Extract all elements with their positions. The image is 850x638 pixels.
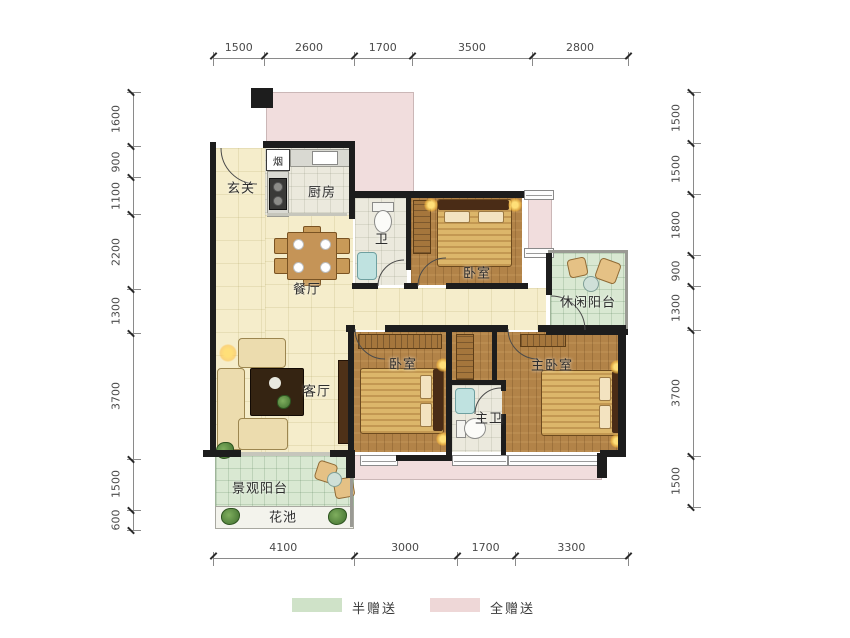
dim-label: 2600 (295, 41, 323, 54)
wall (203, 450, 241, 457)
dimension-rail-left: 160090011002200130037001500600 (133, 92, 134, 530)
dim-label: 1700 (472, 541, 500, 554)
flue-box: 烟 (266, 149, 290, 171)
wall (348, 325, 354, 455)
bath-basin-icon (357, 252, 377, 280)
dimension-rail-top: 15002600170035002800 (213, 58, 628, 59)
dim-label: 4100 (269, 541, 297, 554)
flower-bed-label: 花池 (269, 507, 297, 526)
leisure-balcony-label: 休闲阳台 (560, 292, 616, 311)
wall (600, 450, 626, 457)
lamp-icon (508, 198, 522, 212)
wall (492, 332, 497, 382)
dim-label: 900 (110, 151, 123, 172)
armchair-icon (238, 338, 286, 368)
legend-half-gift-label: 半赠送 (352, 598, 397, 617)
legend-full-gift-label: 全赠送 (490, 598, 535, 617)
dim-label: 3000 (391, 541, 419, 554)
dim-label: 1600 (110, 105, 123, 133)
entry-label: 玄关 (227, 178, 255, 197)
dim-label: 1500 (110, 470, 123, 498)
window (508, 455, 599, 466)
balcony-wall (625, 250, 628, 334)
balcony-wall (548, 250, 628, 253)
bedroom-mid-label: 卧室 (389, 354, 417, 373)
dimension-rail-right: 150015001800900130037001500 (693, 92, 694, 507)
floor-plan: 烟 (0, 0, 850, 638)
window (524, 190, 554, 200)
hallway-floor (353, 288, 546, 330)
living-label: 客厅 (303, 381, 331, 400)
bed-icon (360, 368, 444, 434)
wall (538, 325, 626, 332)
wall (446, 283, 528, 289)
wardrobe-icon (358, 334, 442, 349)
dim-label: 1100 (110, 182, 123, 210)
wall (251, 88, 273, 108)
wardrobe-icon (456, 334, 474, 380)
bed-icon (437, 199, 512, 267)
window (360, 455, 398, 466)
window (452, 455, 508, 466)
flue-label: 烟 (273, 153, 283, 168)
master-bath-label: 主卫 (475, 408, 503, 427)
wall (352, 283, 378, 289)
dim-label: 3700 (110, 382, 123, 410)
wall (352, 191, 528, 198)
dining-chair-icon (335, 258, 350, 274)
coffee-table-icon (250, 368, 304, 416)
balcony-table-icon (327, 472, 342, 487)
dim-label: 1800 (670, 211, 683, 239)
dim-label: 2800 (566, 41, 594, 54)
kitchen-label: 厨房 (308, 182, 336, 201)
dim-label: 1500 (670, 467, 683, 495)
full-gift-zone-top-right (353, 145, 414, 196)
wall (349, 141, 355, 219)
dining-table-icon (287, 232, 337, 280)
wall (546, 253, 552, 295)
wall (618, 325, 626, 455)
balcony-table-icon (583, 276, 599, 292)
dim-label: 1500 (670, 104, 683, 132)
legend-half-gift-swatch (292, 598, 342, 612)
dining-chair-icon (335, 238, 350, 254)
dim-label: 3700 (670, 379, 683, 407)
dim-label: 600 (110, 509, 123, 530)
legend-full-gift-swatch (430, 598, 480, 612)
balcony-chair-icon (566, 256, 589, 279)
master-bath-basin-icon (455, 388, 475, 414)
dim-label: 3500 (458, 41, 486, 54)
wall (263, 141, 355, 148)
door-sill (241, 452, 330, 456)
full-gift-zone-bedroom-side (528, 198, 552, 251)
dining-label: 餐厅 (293, 279, 321, 298)
dresser-icon (520, 334, 566, 347)
dim-label: 1500 (225, 41, 253, 54)
bath-label: 卫 (375, 229, 389, 248)
wall (210, 142, 216, 457)
dimension-rail-bottom: 4100300017003300 (213, 558, 628, 559)
dim-label: 1300 (670, 294, 683, 322)
view-balcony-label: 景观阳台 (232, 478, 288, 497)
wall (501, 385, 506, 391)
floor-lamp-icon (219, 344, 237, 362)
wall (446, 325, 452, 455)
dim-label: 2200 (110, 238, 123, 266)
dim-label: 1700 (369, 41, 397, 54)
wall (396, 455, 452, 461)
dim-label: 900 (670, 260, 683, 281)
dim-label: 1300 (110, 297, 123, 325)
wall (406, 198, 411, 270)
bed-icon (541, 370, 623, 436)
bedroom-top-label: 卧室 (463, 263, 491, 282)
armchair-icon (238, 418, 288, 450)
door-sill (267, 213, 347, 216)
dim-label: 1500 (670, 155, 683, 183)
dim-label: 3300 (557, 541, 585, 554)
master-bedroom-label: 主卧室 (531, 355, 573, 374)
stove-icon (269, 178, 287, 210)
lamp-icon (424, 198, 438, 212)
kitchen-sink-icon (312, 151, 338, 165)
wall (346, 453, 355, 478)
wall (404, 283, 418, 289)
wall (452, 380, 506, 385)
